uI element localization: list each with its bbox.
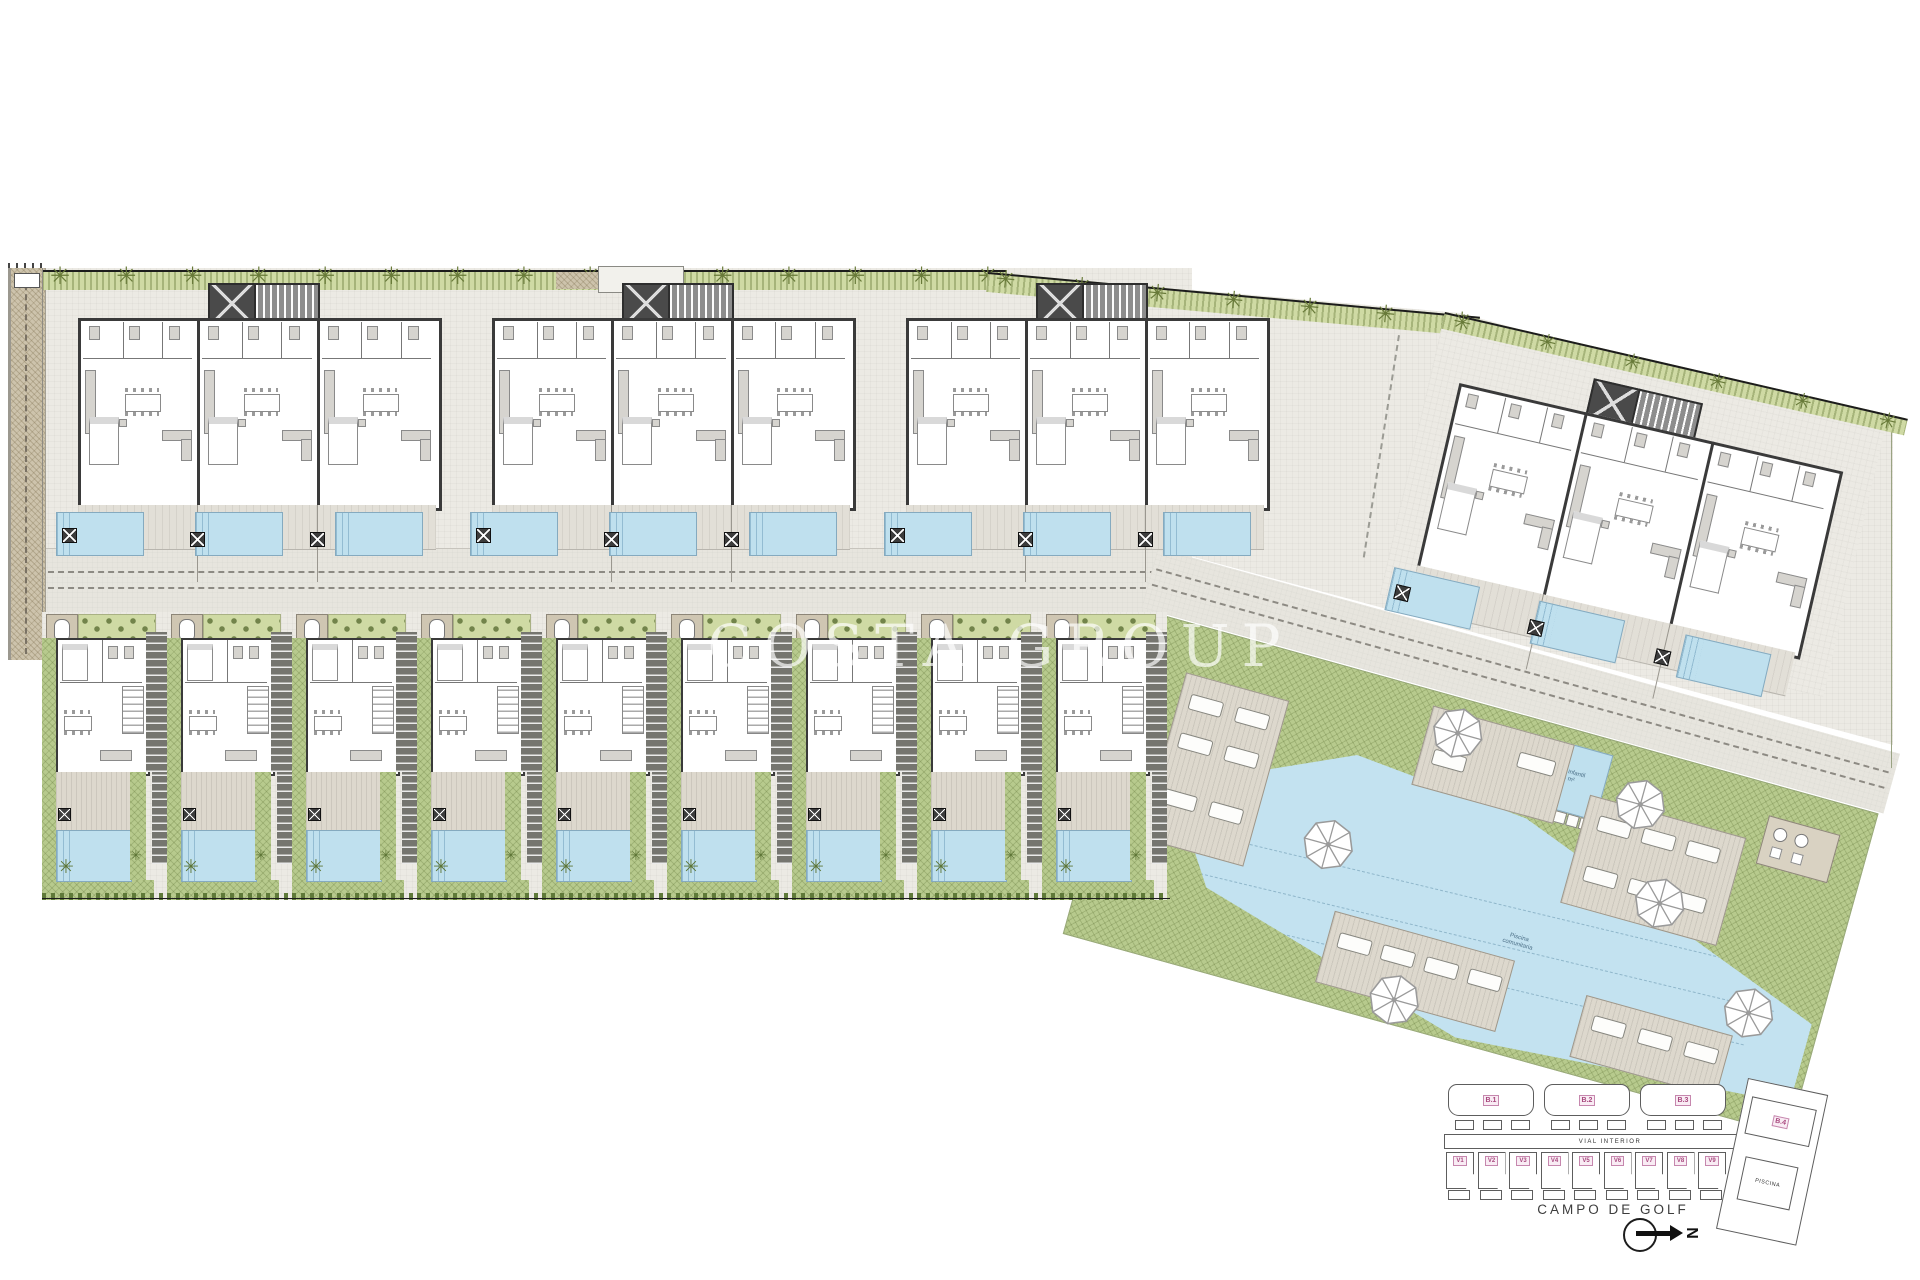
partition-line	[1150, 358, 1259, 359]
keyplan-block-pool	[1703, 1120, 1722, 1130]
partition-line	[911, 358, 1020, 359]
keyplan-villa-label: V1	[1453, 1156, 1466, 1166]
keyplan-block-label: B.1	[1483, 1095, 1500, 1106]
partition-line	[685, 682, 767, 683]
chair-dots	[439, 710, 465, 714]
partition-line	[810, 682, 892, 683]
sun-lounger	[1516, 751, 1557, 777]
partition-line	[497, 358, 606, 359]
keyplan-block-b4: B.4	[1744, 1096, 1816, 1147]
sun-lounger	[1187, 694, 1224, 719]
unit-divider-wall	[611, 318, 614, 505]
nightstand	[1066, 419, 1074, 427]
villa-plot-V1: ✳✳	[42, 612, 167, 900]
chair-dots	[1064, 731, 1090, 735]
sofa	[715, 439, 726, 461]
chair-dots	[689, 731, 715, 735]
unit-divider-wall	[1025, 318, 1028, 505]
planter-box	[183, 808, 196, 821]
bath-fixture	[483, 646, 493, 659]
keyplan-road: VIAL INTERIOR	[1444, 1134, 1776, 1149]
garden-column	[755, 772, 771, 830]
side-stair-strip	[771, 632, 792, 772]
sofa	[1248, 439, 1259, 461]
partition-line	[1030, 358, 1139, 359]
chair-dots	[1191, 388, 1225, 392]
partition-line	[1102, 640, 1103, 682]
bath-fixture	[608, 646, 618, 659]
palm-tree-icon: ✳	[505, 848, 521, 864]
bath-fixture	[169, 326, 180, 340]
partition-line	[935, 682, 1017, 683]
planter-box	[724, 532, 739, 547]
partition-line	[352, 640, 353, 682]
keyplan-golf-label: CAMPO DE GOLF	[1493, 1202, 1733, 1217]
dining-table	[244, 394, 280, 412]
partition-line	[102, 640, 103, 682]
pool-steps	[336, 513, 354, 555]
sofa	[834, 439, 845, 461]
keyplan-villa-label: V6	[1611, 1156, 1624, 1166]
garden-strip-left	[792, 638, 806, 900]
partition-line	[281, 322, 282, 358]
side-stair-strip	[521, 632, 542, 772]
side-stair-strip-narrow	[402, 772, 417, 864]
keyplan-villa: V4	[1541, 1152, 1569, 1189]
keyplan-villa-pool	[1448, 1190, 1470, 1200]
palm-tree-icon: ✳	[1130, 848, 1146, 864]
chair-dots	[777, 388, 811, 392]
dining-table	[125, 394, 161, 412]
dining-table	[658, 394, 694, 412]
sofa	[1129, 439, 1140, 461]
chair-dots	[1072, 412, 1106, 416]
palm-tree-icon: ✳	[558, 858, 578, 878]
bath-fixture	[108, 646, 118, 659]
dining-table	[689, 716, 717, 731]
keyplan-block-pool	[1551, 1120, 1570, 1130]
sun-lounger	[1684, 840, 1721, 865]
garden-column	[1130, 772, 1146, 830]
entry-hedge	[453, 614, 531, 640]
partition-line	[736, 358, 845, 359]
bath-fixture	[1108, 646, 1118, 659]
villa-stairs	[1122, 686, 1144, 734]
dirt-center-dash	[25, 274, 27, 654]
chair-dots	[564, 710, 590, 714]
keyplan-block-label: B.3	[1675, 1095, 1692, 1106]
palm-tree-icon: ✳	[933, 858, 953, 878]
chair-dots	[189, 710, 215, 714]
planter-box	[308, 808, 321, 821]
bed	[437, 644, 463, 681]
side-stair-strip-narrow	[1027, 772, 1042, 864]
villa-stairs	[122, 686, 144, 734]
dining-table	[1191, 394, 1227, 412]
sofa	[850, 750, 882, 761]
road-dash-line	[48, 571, 1186, 573]
keyplan-villa: V2	[1478, 1152, 1506, 1189]
entry-hedge	[1078, 614, 1156, 640]
palm-tree-icon: ✳	[130, 848, 146, 864]
keyplan-villa-pool	[1574, 1190, 1596, 1200]
palm-tree-icon: ✳	[755, 848, 771, 864]
chair-dots	[125, 388, 159, 392]
planter-box	[808, 808, 821, 821]
partition-line	[616, 358, 725, 359]
nightstand	[238, 419, 246, 427]
villa-stairs	[622, 686, 644, 734]
garden-column	[880, 772, 896, 830]
bath-fixture	[957, 326, 968, 340]
partition-line	[185, 682, 267, 683]
bed	[687, 644, 713, 681]
bed	[812, 644, 838, 681]
palm-tree-icon: ✳	[183, 858, 203, 878]
road-dash-line	[48, 587, 1186, 589]
partition-line	[123, 322, 124, 358]
bath-fixture	[374, 646, 384, 659]
side-stair-strip	[1021, 632, 1042, 772]
chair-dots	[244, 388, 278, 392]
garden-strip-left	[917, 638, 931, 900]
partition-line	[727, 640, 728, 682]
partition-line	[162, 322, 163, 358]
chair-dots	[539, 412, 573, 416]
entry-hedge	[828, 614, 906, 640]
partition-line	[852, 640, 853, 682]
bath-fixture	[733, 646, 743, 659]
dining-table	[953, 394, 989, 412]
bath-fixture	[1195, 326, 1206, 340]
palm-tree-icon: ✳	[308, 858, 328, 878]
bath-fixture	[703, 326, 714, 340]
keyplan-villa-label: V7	[1642, 1156, 1655, 1166]
palm-tree-icon: ✳	[1374, 302, 1396, 328]
palm-tree-icon: ✳	[433, 858, 453, 878]
sofa	[100, 750, 132, 761]
private-pool	[335, 512, 423, 556]
palm-tree-icon: ✳	[1058, 858, 1078, 878]
palm-tree-icon: ✳	[1876, 408, 1899, 434]
keyplan-b4-label: B.4	[1771, 1115, 1790, 1129]
bath-fixture	[1036, 326, 1047, 340]
private-pool	[749, 512, 837, 556]
bath-fixture	[208, 326, 219, 340]
sun-lounger	[1582, 865, 1619, 890]
partition-line	[576, 322, 577, 358]
chair-dots	[814, 710, 840, 714]
planter-box	[683, 808, 696, 821]
chair-dots	[777, 412, 811, 416]
pergola-table	[1772, 826, 1789, 843]
garden-column	[505, 772, 521, 830]
bath-fixture	[858, 646, 868, 659]
pergola-chair	[1790, 852, 1804, 866]
keyplan-block-pool	[1511, 1120, 1530, 1130]
chair-dots	[189, 731, 215, 735]
dining-table	[777, 394, 813, 412]
bath-fixture	[1124, 646, 1134, 659]
planter-box	[476, 528, 491, 543]
pergola-chair	[1769, 846, 1783, 860]
planter-box	[58, 808, 71, 821]
bath-fixture	[822, 326, 833, 340]
nightstand	[772, 419, 780, 427]
villa-plot-V2: ✳✳	[167, 612, 292, 900]
chair-dots	[658, 388, 692, 392]
villa-stairs	[997, 686, 1019, 734]
chair-dots	[1072, 388, 1106, 392]
keyplan-villa-label: V4	[1548, 1156, 1561, 1166]
villa-stairs	[872, 686, 894, 734]
dining-table	[564, 716, 592, 731]
bath-fixture	[997, 326, 1008, 340]
bed	[89, 417, 119, 465]
bed	[1062, 644, 1088, 681]
bath-fixture	[499, 646, 509, 659]
palm-tree-icon: ✳	[880, 848, 896, 864]
keyplan-block-pool	[1607, 1120, 1626, 1130]
dirt-lane	[8, 268, 46, 660]
planter-box	[1138, 532, 1153, 547]
planter-box	[1058, 808, 1071, 821]
palm-tree-icon: ✳	[808, 858, 828, 878]
sofa	[225, 750, 257, 761]
side-stair-strip-narrow	[1152, 772, 1167, 864]
palm-tree-icon: ✳	[1005, 848, 1021, 864]
chair-dots	[953, 388, 987, 392]
bath-fixture	[233, 646, 243, 659]
entry-hedge	[203, 614, 281, 640]
nightstand	[652, 419, 660, 427]
villa-plot-V9: ✳✳	[1042, 612, 1167, 900]
bath-fixture	[503, 326, 514, 340]
bath-fixture	[622, 326, 633, 340]
keyplan-villa: V3	[1509, 1152, 1537, 1189]
pergola	[1756, 815, 1841, 883]
unit-divider-wall	[197, 318, 200, 505]
north-arrow-shaft	[1636, 1231, 1672, 1236]
partition-line	[1070, 322, 1071, 358]
garden-strip-left	[292, 638, 306, 900]
keyplan-villa-pool	[1669, 1190, 1691, 1200]
bath-fixture	[662, 326, 673, 340]
garden-column	[630, 772, 646, 830]
private-pool	[195, 512, 283, 556]
chair-dots	[244, 412, 278, 416]
garden-strip-left	[167, 638, 181, 900]
entry-hedge	[328, 614, 406, 640]
apartment-block-B.3	[876, 270, 1286, 552]
partition-line	[242, 322, 243, 358]
palm-tree-icon: ✳	[1298, 295, 1320, 321]
chair-dots	[314, 710, 340, 714]
palm-tree-icon: ✳	[380, 848, 396, 864]
chair-dots	[363, 412, 397, 416]
villa-plot-V4: ✳✳	[417, 612, 542, 900]
partition-line	[60, 682, 142, 683]
bed	[328, 417, 358, 465]
sofa	[595, 439, 606, 461]
dining-table	[439, 716, 467, 731]
villa-stairs	[747, 686, 769, 734]
side-stair-strip	[271, 632, 292, 772]
side-stair-strip-narrow	[777, 772, 792, 864]
villa-stairs	[372, 686, 394, 734]
chair-dots	[64, 731, 90, 735]
garden-strip-left	[1042, 638, 1056, 900]
bed	[742, 417, 772, 465]
unit-divider-wall	[317, 318, 320, 505]
bed	[503, 417, 533, 465]
side-stair-strip-narrow	[652, 772, 667, 864]
entry-hedge	[78, 614, 156, 640]
bath-fixture	[1156, 326, 1167, 340]
bath-fixture	[358, 646, 368, 659]
keyplan-right-parcel: B.4 PISCINA	[1716, 1078, 1828, 1246]
dining-table	[1064, 716, 1092, 731]
villa-plot-V6: ✳✳	[667, 612, 792, 900]
sofa	[420, 439, 431, 461]
keyplan-block-pool	[1579, 1120, 1598, 1130]
sofa	[301, 439, 312, 461]
partition-line	[1189, 322, 1190, 358]
keyplan-villa: V1	[1446, 1152, 1474, 1189]
bath-fixture	[89, 326, 100, 340]
keyplan-villa-label: V5	[1579, 1156, 1592, 1166]
bath-fixture	[1236, 326, 1247, 340]
bath-fixture	[742, 326, 753, 340]
keyplan-piscina-label: PISCINA	[1754, 1178, 1780, 1189]
palm-tree-icon: ✳	[255, 848, 271, 864]
sun-lounger	[1590, 1015, 1627, 1040]
garden-strip-left	[42, 638, 56, 900]
keyplan-piscina-outline: PISCINA	[1737, 1156, 1799, 1210]
palm-tree-icon: ✳	[630, 848, 646, 864]
keyplan-block-pool	[1647, 1120, 1666, 1130]
chair-dots	[1191, 412, 1225, 416]
keyplan-villa-label: V8	[1674, 1156, 1687, 1166]
entry-hedge	[703, 614, 781, 640]
dining-table	[189, 716, 217, 731]
villa-plot-V3: ✳✳	[292, 612, 417, 900]
bed	[917, 417, 947, 465]
sun-lounger	[1234, 706, 1271, 731]
side-stair-strip	[896, 632, 917, 772]
sun-lounger	[1379, 944, 1416, 969]
partition-line	[1109, 322, 1110, 358]
sun-lounger	[1207, 801, 1244, 826]
nightstand	[358, 419, 366, 427]
dining-table	[64, 716, 92, 731]
nightstand	[1186, 419, 1194, 427]
dining-table	[814, 716, 842, 731]
garden-column	[1005, 772, 1021, 830]
keyplan-villa: V8	[1667, 1152, 1695, 1189]
chair-dots	[658, 412, 692, 416]
nightstand	[947, 419, 955, 427]
keyplan-villa-pool	[1606, 1190, 1628, 1200]
planter-box	[558, 808, 571, 821]
key-plan: VIAL INTERIOR CAMPO DE GOLF B.4 PISCINA …	[1418, 1078, 1838, 1280]
north-letter: N	[1682, 1227, 1700, 1239]
planter-box	[62, 528, 77, 543]
partition-line	[815, 322, 816, 358]
chair-dots	[953, 412, 987, 416]
planter-box	[604, 532, 619, 547]
chair-dots	[439, 731, 465, 735]
partition-line	[435, 682, 517, 683]
partition-line	[990, 322, 991, 358]
bath-fixture	[129, 326, 140, 340]
partition-line	[1229, 322, 1230, 358]
bed	[937, 644, 963, 681]
side-stair-strip-narrow	[277, 772, 292, 864]
garden-strip-left	[417, 638, 431, 900]
partition-line	[361, 322, 362, 358]
planter-box	[890, 528, 905, 543]
private-pool	[1023, 512, 1111, 556]
dining-table	[363, 394, 399, 412]
sun-lounger	[1683, 1041, 1720, 1066]
keyplan-block-pool	[1483, 1120, 1502, 1130]
vial-interior-road	[42, 548, 1192, 614]
partition-line	[83, 358, 192, 359]
partition-line	[695, 322, 696, 358]
partition-line	[1060, 682, 1142, 683]
villa-plot-V7: ✳✳	[792, 612, 917, 900]
palm-tree-icon: ✳	[683, 858, 703, 878]
chair-dots	[314, 731, 340, 735]
unit-divider-wall	[731, 318, 734, 505]
sun-lounger	[1177, 732, 1214, 757]
bath-fixture	[367, 326, 378, 340]
sofa	[1009, 439, 1020, 461]
side-stair-strip-narrow	[152, 772, 167, 864]
partition-line	[401, 322, 402, 358]
sun-lounger	[1423, 956, 1460, 981]
bath-fixture	[289, 326, 300, 340]
keyplan-villa-pool	[1700, 1190, 1722, 1200]
bath-fixture	[749, 646, 759, 659]
sofa	[181, 439, 192, 461]
bed	[312, 644, 338, 681]
pool-steps	[750, 513, 768, 555]
sun-lounger	[1466, 968, 1503, 993]
west-boundary-line	[42, 268, 43, 612]
bed	[62, 644, 88, 681]
apartment-block-B.2	[462, 270, 872, 552]
east-boundary-line	[1891, 428, 1892, 768]
side-stair-strip	[1146, 632, 1167, 772]
partition-line	[560, 682, 642, 683]
bath-fixture	[917, 326, 928, 340]
villa-stairs	[497, 686, 519, 734]
sofa	[600, 750, 632, 761]
bath-fixture	[1076, 326, 1087, 340]
planter-box	[1018, 532, 1033, 547]
bath-fixture	[124, 646, 134, 659]
chair-dots	[564, 731, 590, 735]
partition-line	[537, 322, 538, 358]
villa-plot-V5: ✳✳	[542, 612, 667, 900]
keyplan-block-pool	[1675, 1120, 1694, 1130]
keyplan-villa-pool	[1480, 1190, 1502, 1200]
private-pool	[1163, 512, 1251, 556]
sofa	[725, 750, 757, 761]
south-boundary-line	[42, 898, 1170, 899]
